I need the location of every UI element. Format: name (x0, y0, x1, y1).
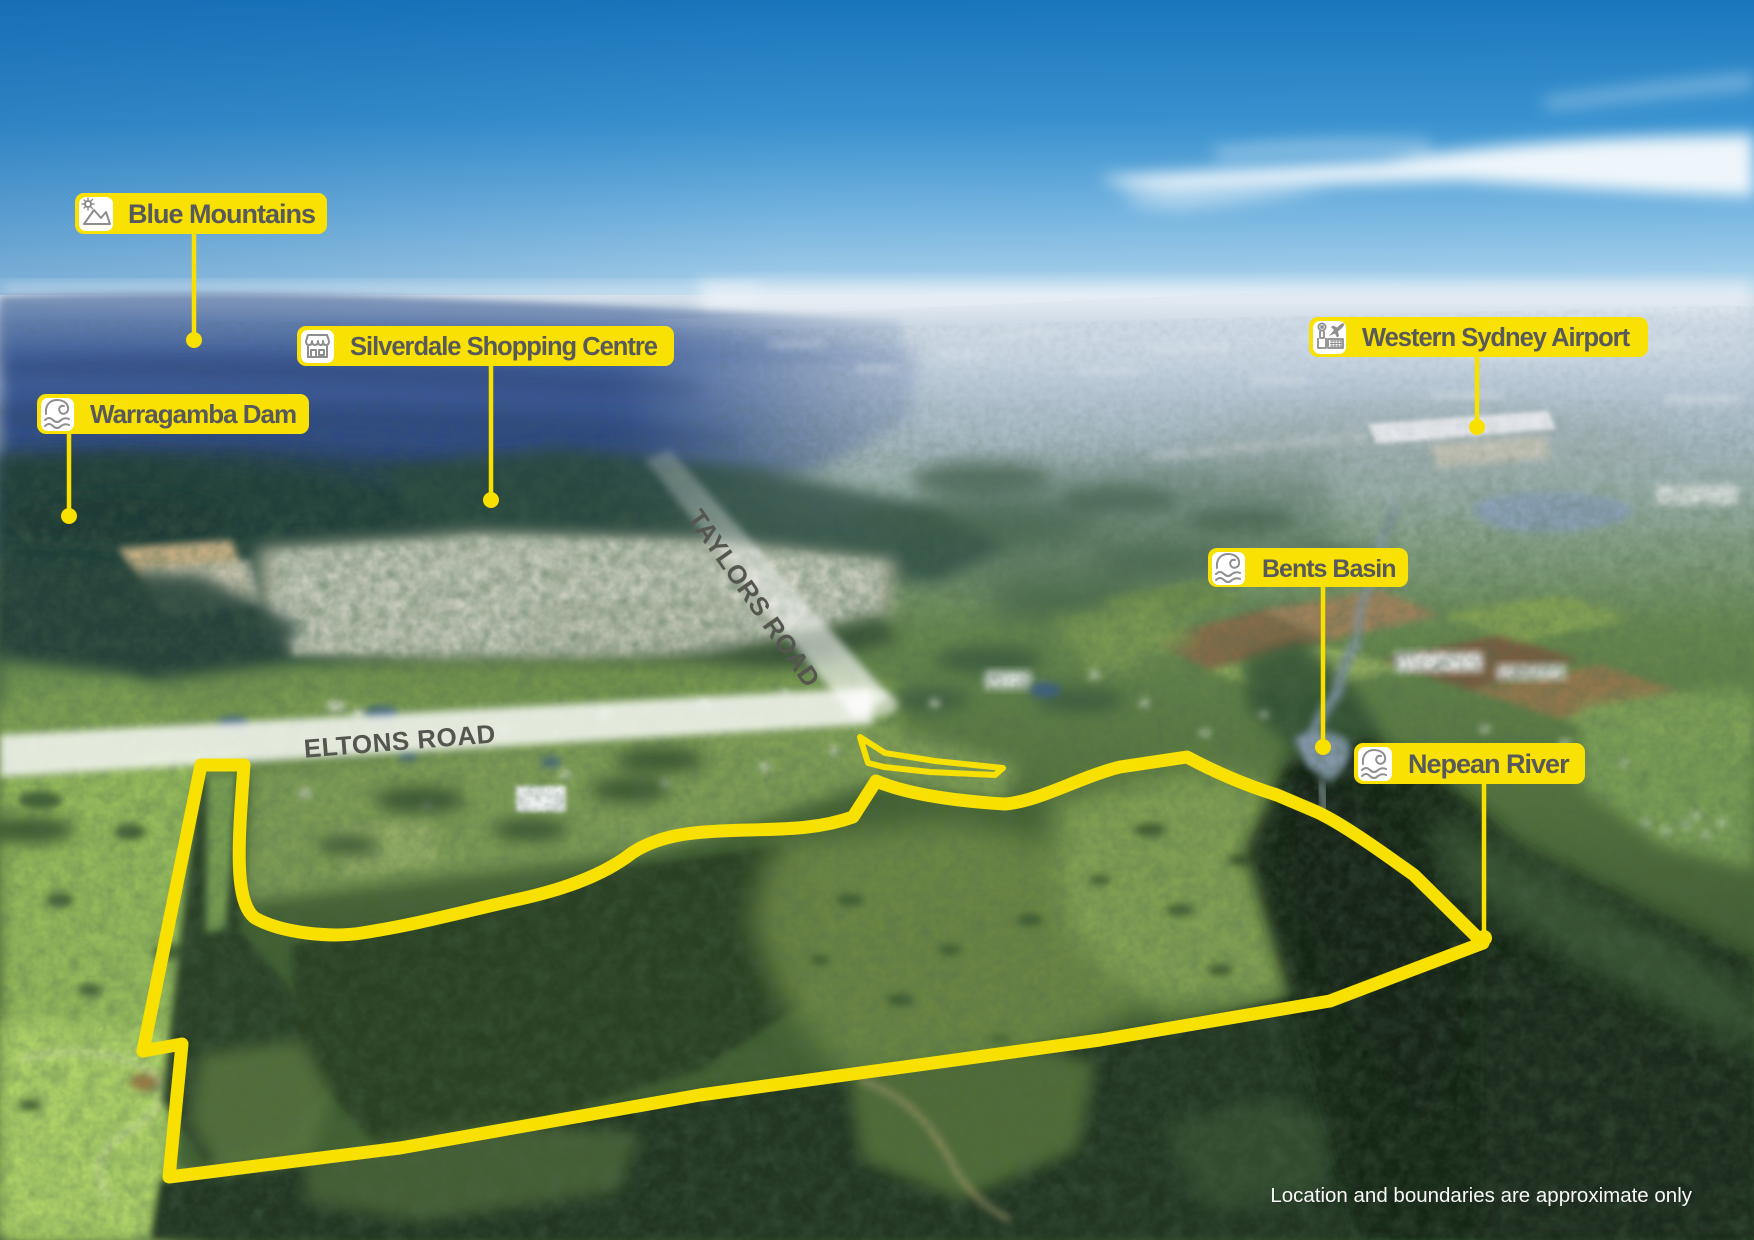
svg-text:Bents Basin: Bents Basin (1262, 555, 1395, 583)
svg-text:Nepean River: Nepean River (1408, 749, 1570, 779)
svg-text:Blue Mountains: Blue Mountains (128, 199, 315, 229)
svg-text:Location and boundaries are ap: Location and boundaries are approximate … (1270, 1184, 1692, 1207)
svg-text:Western Sydney Airport: Western Sydney Airport (1362, 324, 1631, 352)
svg-text:Silverdale Shopping Centre: Silverdale Shopping Centre (350, 333, 658, 361)
svg-text:Warragamba Dam: Warragamba Dam (90, 399, 296, 429)
